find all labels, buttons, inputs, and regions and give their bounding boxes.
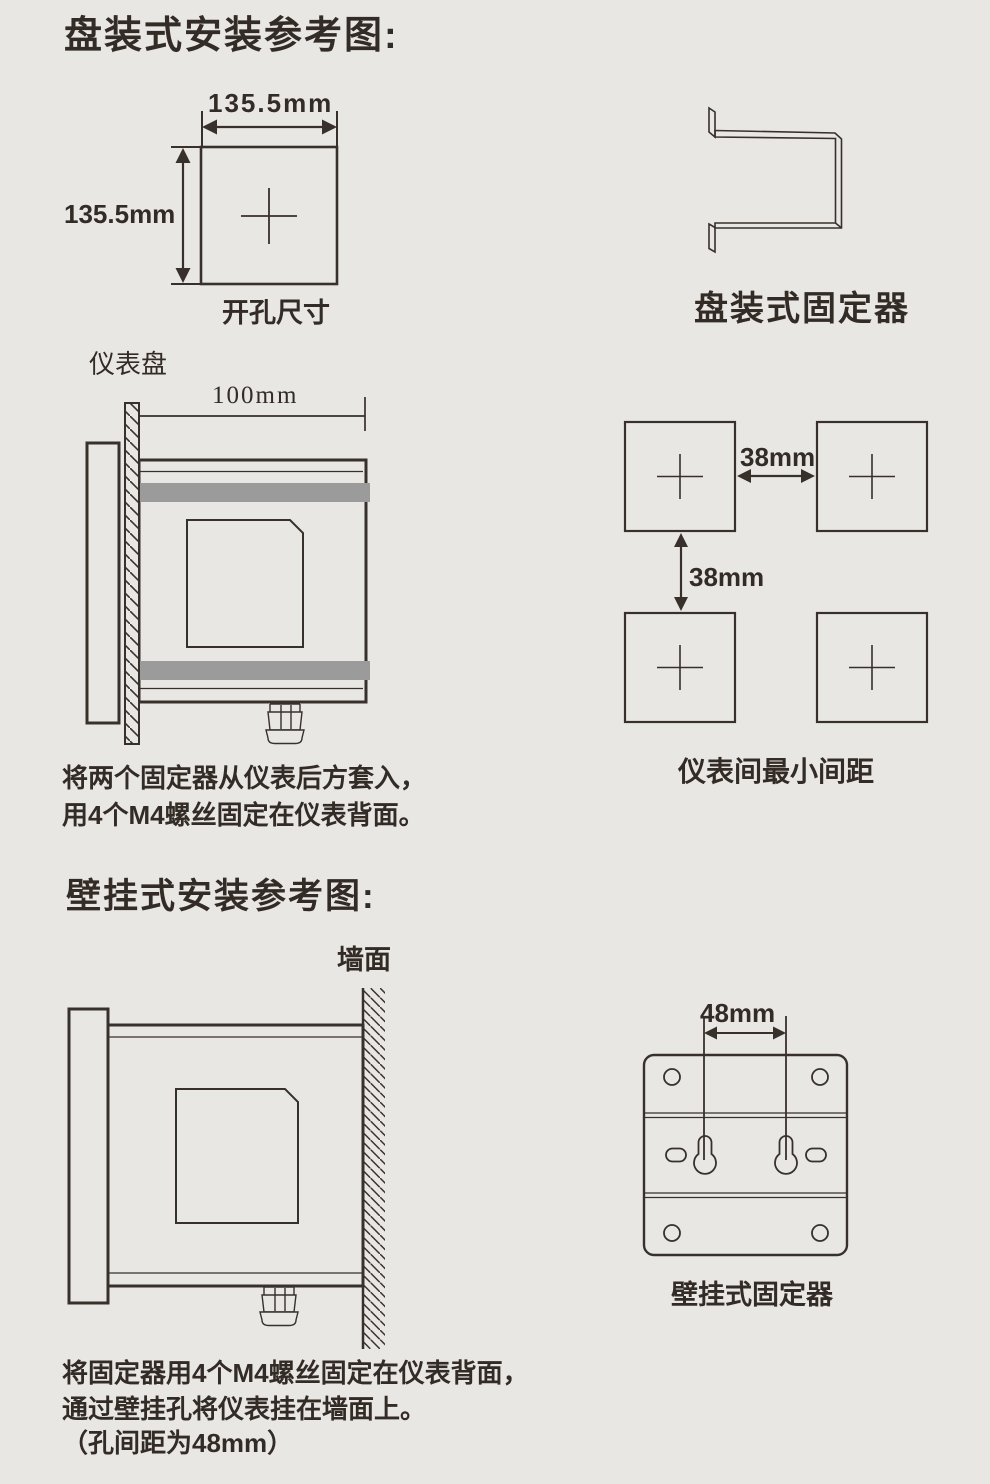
panel-note-line1: 将两个固定器从仪表后方套入，: [62, 765, 426, 792]
wall-note-line1: 将固定器用4个M4螺丝固定在仪表背面，: [62, 1360, 529, 1387]
wall-side-view-drawing: [69, 988, 385, 1349]
cutout-caption: 开孔尺寸: [222, 299, 330, 327]
depth-dimension-label: 100mm: [212, 383, 298, 409]
cutout-width-label: 135.5mm: [208, 90, 333, 117]
panel-mount-title: 盘装式安装参考图:: [64, 17, 399, 57]
panel-fixer-drawing: [709, 108, 842, 252]
installation-diagram-page: 盘装式安装参考图: 135.5mm 135.5mm 开孔尺寸 盘装式固定器 仪表…: [0, 0, 990, 1484]
wall-note-line3: （孔间距为48mm）: [62, 1430, 293, 1457]
wall-fixer-drawing: [644, 1016, 847, 1255]
wall-fixer-hole-spacing-label: 48mm: [700, 1000, 775, 1027]
cutout-diagram: [171, 111, 337, 284]
spacing-horizontal-label: 38mm: [740, 444, 815, 471]
cutout-height-label: 135.5mm: [64, 201, 175, 228]
panel-label: 仪表盘: [89, 351, 167, 378]
spacing-caption: 仪表间最小间距: [678, 757, 874, 786]
panel-side-view-drawing: [87, 397, 370, 744]
wall-fixer-caption: 壁挂式固定器: [671, 1281, 833, 1309]
panel-fixer-caption: 盘装式固定器: [694, 292, 910, 328]
panel-note-line2: 用4个M4螺丝固定在仪表背面。: [62, 802, 425, 829]
spacing-vertical-label: 38mm: [689, 564, 764, 591]
wall-label: 墙面: [337, 946, 391, 974]
wall-mount-title: 壁挂式安装参考图:: [66, 879, 376, 916]
wall-note-line2: 通过壁挂孔将仪表挂在墙面上。: [62, 1396, 426, 1423]
